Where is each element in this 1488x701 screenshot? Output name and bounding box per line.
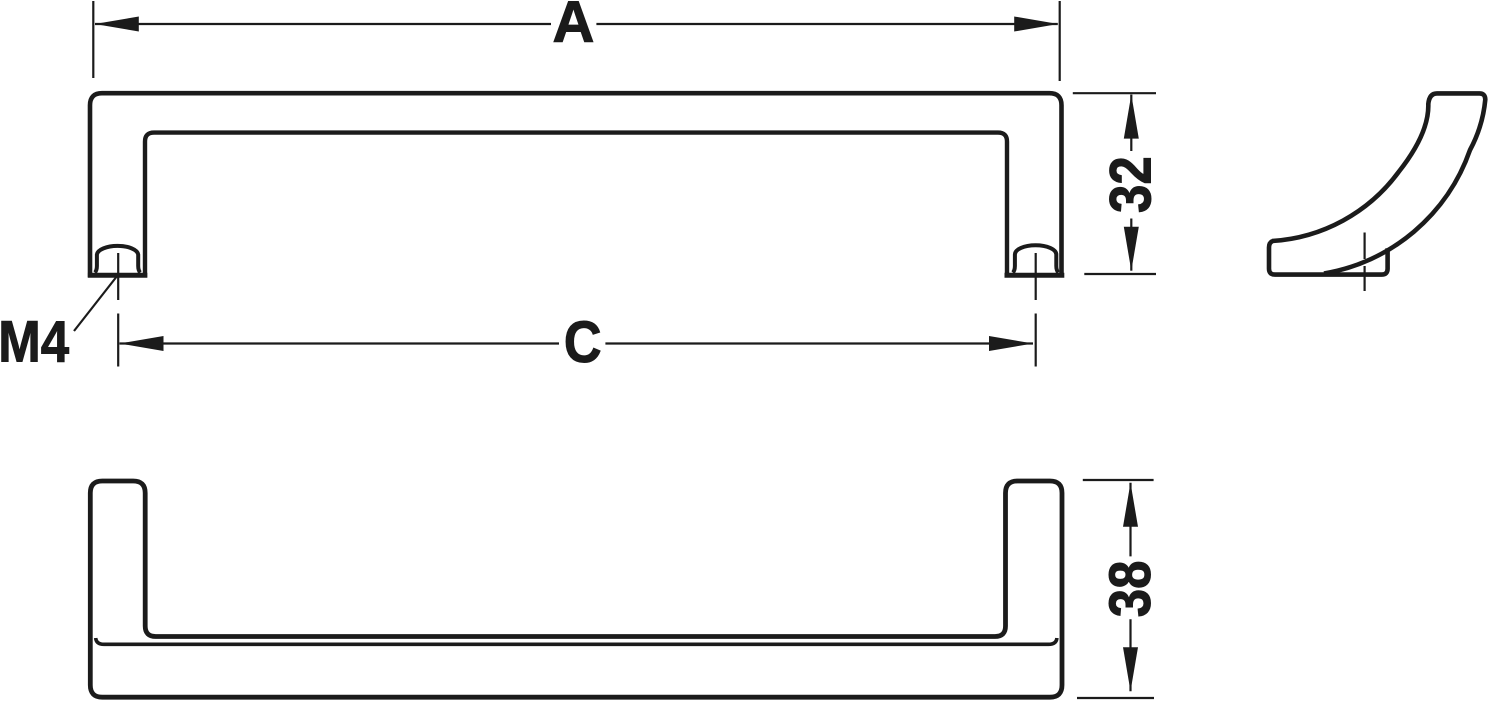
svg-text:38: 38 — [1098, 561, 1163, 618]
svg-text:A: A — [553, 0, 595, 55]
svg-text:M4: M4 — [0, 309, 70, 374]
svg-text:32: 32 — [1099, 156, 1164, 213]
svg-text:C: C — [564, 309, 602, 374]
